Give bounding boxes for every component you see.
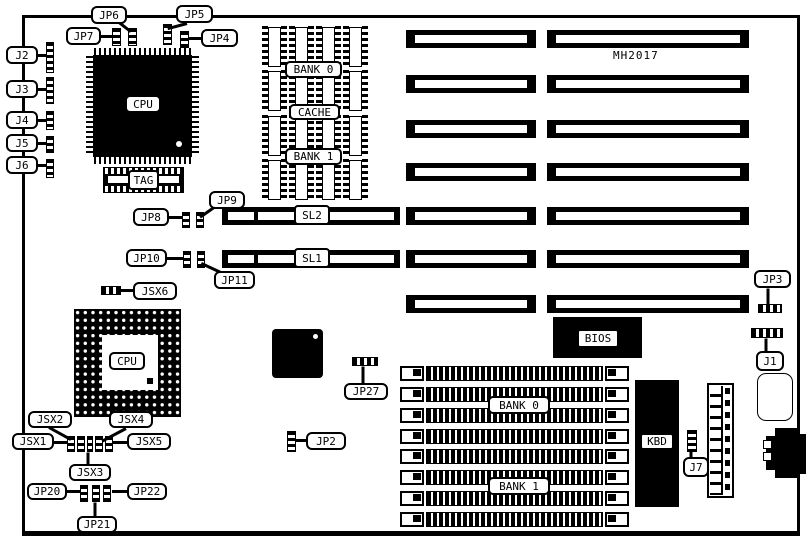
- cache-chip: [343, 70, 368, 112]
- cache-chip: [343, 26, 368, 68]
- callout-jp4: JP4: [201, 29, 238, 47]
- expansion-slot: [547, 120, 749, 138]
- tag-stripe-right: [157, 176, 179, 183]
- callout-jp8: JP8: [133, 208, 169, 226]
- callout-j7: J7: [683, 457, 709, 477]
- callout-jsx3: JSX3: [69, 464, 111, 481]
- cache-chip: [262, 159, 287, 201]
- simm-latch: [605, 470, 629, 485]
- simm-socket: [426, 429, 603, 444]
- jp20-jumper: [80, 485, 88, 502]
- expansion-slot: [547, 295, 749, 313]
- callout-jsx2: JSX2: [28, 411, 72, 428]
- cpu-pin1-dot: [176, 141, 182, 147]
- callout-jp6: JP6: [91, 6, 127, 24]
- simm-latch: [400, 491, 424, 506]
- cpu-pins-bottom: [94, 157, 191, 164]
- bios-label: BIOS: [577, 329, 619, 348]
- simm-latch: [605, 366, 629, 381]
- callout-j4: J4: [6, 111, 38, 129]
- cache-bank0-label: BANK 0: [285, 61, 342, 78]
- j4-jumper: [46, 111, 54, 130]
- cpu-pga-label: CPU: [109, 352, 145, 370]
- j5-jumper: [46, 136, 54, 153]
- expansion-slot: [547, 163, 749, 181]
- motherboard-diagram: MH2017 CPU TAG BANK 0 CACHE BANK 1: [0, 0, 807, 541]
- callout-jsx5: JSX5: [127, 433, 171, 450]
- cpu-pins-top: [94, 48, 191, 55]
- simm-socket: [426, 366, 603, 381]
- sl2-label: SL2: [294, 205, 330, 225]
- expansion-slot: [547, 250, 749, 268]
- keyboard-din-connector-stub: [798, 434, 806, 474]
- callout-j1: J1: [756, 351, 784, 371]
- j6-jumper: [46, 159, 54, 178]
- callout-jp5: JP5: [176, 5, 213, 23]
- mem-bank0-label: BANK 0: [488, 396, 550, 414]
- cache-chip: [262, 70, 287, 112]
- cpu-pins-right: [192, 56, 199, 156]
- callout-jp20: JP20: [27, 483, 67, 500]
- callout-jp11: JP11: [214, 271, 255, 289]
- simm-latch: [605, 387, 629, 402]
- cache-chip: [316, 159, 341, 201]
- cache-chip: [262, 115, 287, 157]
- jp7-jumper: [112, 28, 121, 46]
- sl1-label: SL1: [294, 248, 330, 268]
- callout-jsx4: JSX4: [109, 411, 153, 428]
- callout-j3: J3: [6, 80, 38, 98]
- jp20-tail: [65, 490, 81, 493]
- power-connector: [707, 383, 734, 498]
- simm-latch: [400, 449, 424, 464]
- jp27-jumper: [352, 357, 378, 366]
- callout-j6: J6: [6, 156, 38, 174]
- callout-jp10: JP10: [126, 249, 167, 267]
- callout-jsx1: JSX1: [12, 433, 54, 450]
- jp21-jumper: [92, 485, 100, 502]
- simm-socket: [426, 449, 603, 464]
- jp4-jumper: [180, 31, 189, 48]
- expansion-slot: [406, 75, 536, 93]
- jp3-jumper: [758, 304, 782, 313]
- cache-chip: [343, 115, 368, 157]
- simm-bank-area: [400, 366, 630, 528]
- callout-jp3: JP3: [754, 270, 791, 288]
- simm-latch: [400, 512, 424, 527]
- cache-chip: [289, 159, 314, 201]
- jp8-tail: [168, 216, 183, 219]
- cache-label: CACHE: [289, 104, 340, 120]
- tag-label: TAG: [128, 170, 159, 190]
- callout-j5: J5: [6, 134, 38, 152]
- expansion-slot: [406, 250, 536, 268]
- jp22-jumper: [103, 485, 111, 502]
- expansion-slot: [547, 207, 749, 225]
- j7-jumper: [687, 430, 697, 452]
- cache-bank1-label: BANK 1: [285, 148, 342, 165]
- kbd-label: KBD: [640, 433, 674, 450]
- jp10-tail: [166, 257, 183, 260]
- jsx2-jumper: [77, 436, 85, 452]
- expansion-slot: [406, 295, 536, 313]
- jsx1-tail: [52, 441, 68, 444]
- callout-jsx6: JSX6: [133, 282, 177, 300]
- callout-jp7: JP7: [66, 27, 101, 45]
- keyboard-din-connector: [775, 428, 799, 478]
- j2-jumper: [46, 42, 54, 73]
- expansion-slot: [406, 30, 536, 48]
- simm-latch: [400, 387, 424, 402]
- cpu-pga-marker: [147, 378, 153, 384]
- simm-latch: [400, 408, 424, 423]
- cache-chip: [343, 159, 368, 201]
- simm-latch: [400, 429, 424, 444]
- expansion-slot: [547, 30, 749, 48]
- expansion-slot: [406, 207, 536, 225]
- mem-bank1-label: BANK 1: [488, 477, 550, 495]
- din-pin: [763, 440, 772, 449]
- jsx6-jumper: [101, 286, 121, 295]
- simm-latch: [400, 470, 424, 485]
- part-number-text: MH2017: [613, 50, 659, 61]
- jp8-jumper: [182, 212, 190, 228]
- cpu-qfp-label: CPU: [125, 95, 161, 113]
- jsx3-jumper: [87, 436, 93, 452]
- jsx5-tail: [113, 441, 128, 444]
- simm-latch: [605, 429, 629, 444]
- chipset-chip: [272, 329, 323, 378]
- tag-stripe-left: [108, 176, 130, 183]
- j1-jumper: [751, 328, 783, 338]
- simm-latch: [605, 491, 629, 506]
- callout-jp2: JP2: [306, 432, 346, 450]
- chipset-pin1-dot: [313, 334, 318, 339]
- simm-latch: [605, 408, 629, 423]
- j3-jumper: [46, 77, 54, 104]
- jp22-tail: [112, 490, 128, 493]
- jsx6-tail: [120, 289, 134, 292]
- callout-jp22: JP22: [127, 483, 167, 500]
- callout-j2: J2: [6, 46, 38, 64]
- callout-jp9: JP9: [209, 191, 245, 209]
- expansion-slot: [406, 120, 536, 138]
- cache-chip: [262, 26, 287, 68]
- battery: [757, 373, 793, 421]
- cpu-pins-left: [86, 56, 93, 156]
- simm-latch: [605, 512, 629, 527]
- simm-socket: [426, 512, 603, 527]
- din-pin: [763, 452, 772, 461]
- simm-latch: [605, 449, 629, 464]
- expansion-slot: [547, 75, 749, 93]
- callout-jp21: JP21: [77, 516, 117, 533]
- simm-latch: [400, 366, 424, 381]
- callout-jp27: JP27: [344, 383, 388, 400]
- jp10-jumper: [183, 251, 191, 268]
- expansion-slot: [406, 163, 536, 181]
- jp3-tail: [767, 289, 770, 307]
- jp7-tail: [100, 35, 113, 38]
